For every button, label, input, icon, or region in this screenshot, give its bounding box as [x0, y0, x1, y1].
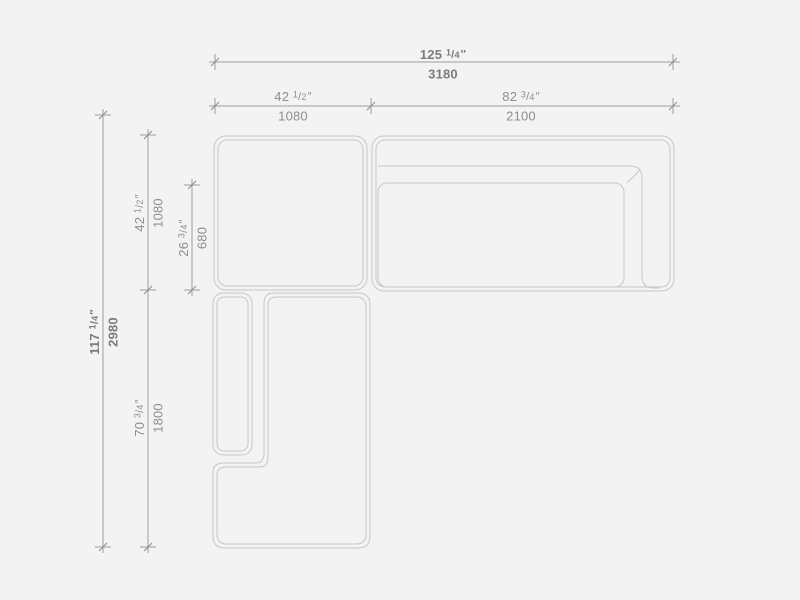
sofa-module-inner-edge	[376, 140, 670, 287]
sofa-module-outline	[372, 136, 674, 291]
chaise-armrest-outer-edge	[213, 293, 252, 455]
dim-right-module-width-inches: 82 3/4″	[502, 88, 539, 104]
dim-chaise-length-mm: 1800	[152, 403, 165, 433]
corner-module-outline	[214, 136, 367, 290]
dim-seat-depth-inches: 26 3/4″	[175, 219, 191, 256]
dim-overall-depth-mm: 2980	[107, 317, 120, 347]
chaise-module-outline	[213, 293, 370, 548]
drawing-canvas	[0, 0, 800, 600]
dim-left-module-width-mm: 1080	[278, 110, 308, 123]
corner-module-inner-edge	[218, 140, 363, 286]
chaise-armrest-inner-edge	[217, 297, 248, 451]
dim-overall-depth-inches: 117 1/4″	[86, 309, 102, 355]
sofa-outlines	[213, 136, 674, 548]
chaise-body-inner-edge	[217, 297, 366, 544]
dim-overall-width-mm: 3180	[428, 68, 458, 81]
sofa-module-outer-edge	[372, 136, 674, 291]
sofa-dimension-drawing: 125 1/4″ 3180 42 1/2″ 1080 82 3/4″ 2100 …	[0, 0, 800, 600]
dimension-ticks	[95, 54, 677, 551]
sofa-corner-seam	[627, 170, 640, 183]
dim-overall-width-inches: 125 1/4″	[420, 46, 466, 62]
dim-right-module-width-mm: 2100	[506, 110, 536, 123]
chaise-body-outer-edge	[213, 293, 370, 548]
dim-chaise-length-inches: 70 3/4″	[131, 399, 147, 436]
sofa-seat-cushion	[378, 183, 624, 287]
dim-seat-depth-mm: 680	[196, 227, 209, 249]
dim-top-module-depth-inches: 42 1/2″	[131, 194, 147, 231]
dim-left-module-width-inches: 42 1/2″	[274, 88, 311, 104]
dim-top-module-depth-mm: 1080	[152, 198, 165, 228]
corner-module-outer-edge	[214, 136, 367, 290]
sofa-backrest-armrest-edge	[378, 166, 659, 288]
